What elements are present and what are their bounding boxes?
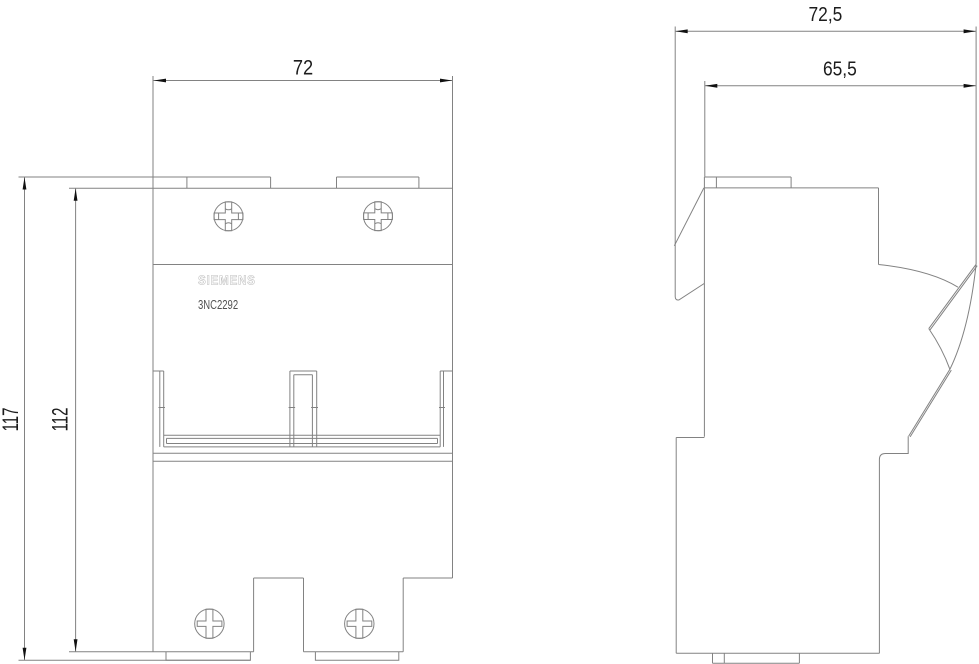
svg-text:SIEMENS: SIEMENS: [198, 273, 256, 288]
svg-text:117: 117: [0, 408, 23, 432]
svg-text:72: 72: [293, 56, 313, 79]
svg-text:3NC2292: 3NC2292: [198, 299, 238, 313]
svg-text:65,5: 65,5: [823, 57, 857, 79]
svg-text:72,5: 72,5: [808, 3, 842, 25]
svg-text:112: 112: [48, 408, 73, 432]
